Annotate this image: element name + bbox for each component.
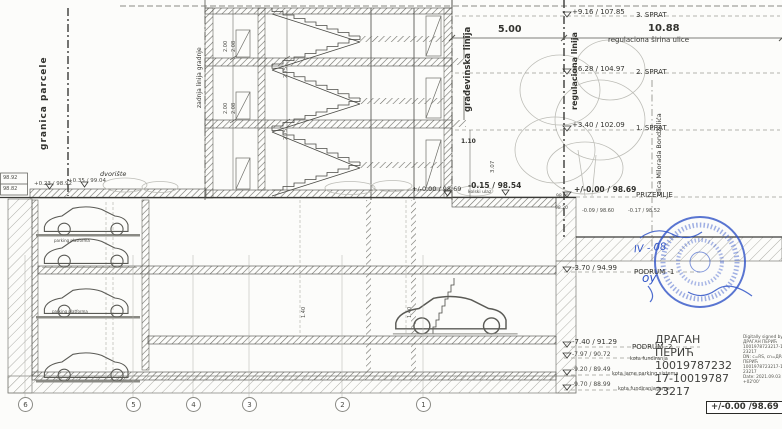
dim-label: 2.75 — [284, 129, 289, 140]
level-name: 3. SPRAT — [636, 12, 667, 19]
level-elev: -7.40 / 91.29 — [572, 339, 617, 346]
parking-system — [36, 200, 406, 383]
grid-bubble: 4 — [186, 397, 201, 412]
datum-box: +/-0.00 /98.69 — [706, 401, 782, 414]
level-name: PRIZEMLJE — [636, 192, 673, 199]
car-silhouettes — [42, 207, 517, 381]
granica-parcele-label: granica parcele — [40, 56, 49, 150]
dim-10-88: 10.88 — [648, 24, 680, 34]
level-elev: +9.16 / 107.85 — [572, 9, 625, 16]
level-elev: +6.28 / 104.97 — [572, 66, 625, 73]
signature-name-line: 10019787232 — [655, 360, 732, 371]
dim-label: 2.75 — [284, 67, 289, 78]
yard-elevation: +0.35 / 99.04 — [68, 179, 106, 185]
level-name: 2. SPRAT — [636, 69, 667, 76]
grid-bubble: 3 — [242, 397, 257, 412]
signature-name-line: 23217 — [655, 386, 690, 397]
dim-label: 2.08 — [232, 103, 237, 114]
dvoriste-label: dvorište — [100, 171, 126, 178]
car-caption: parking platforma — [54, 239, 90, 243]
grid-bubble: 1 — [416, 397, 431, 412]
ramp-note: kolski ulaz — [468, 191, 491, 196]
verification-stamp — [640, 217, 752, 307]
street-width-label: regulaciona širina ulice — [608, 37, 689, 44]
section-drawing-sheet: granica parcele zadnja linija gradnje gr… — [0, 0, 782, 429]
level-elev: +/-0.00 / 98.69 — [574, 186, 636, 194]
gradjevinska-linija-label: građevinska linija — [464, 27, 473, 112]
street-spot-elevation: 98.20 — [555, 207, 568, 212]
dim-label: 1.10 — [461, 139, 476, 145]
dim-label: 1.40 — [302, 307, 307, 318]
signature-name-line: ДРАГАН — [655, 334, 700, 345]
level-elev: -9.70 / 88.99 — [572, 382, 611, 388]
ramp-elevation: -0.15 / 98.54 — [468, 182, 521, 190]
pavement-elevation: -0.09 / 98.60 — [582, 209, 614, 214]
dim-label: 3.07 — [491, 161, 497, 173]
signature-name-line: ПЕРИЋ — [655, 347, 694, 358]
level-elev: -9.20 / 89.49 — [572, 367, 611, 373]
pavement-elevation: -0.17 / 98.52 — [628, 209, 660, 214]
spot-elevation: 98.92 — [3, 176, 17, 181]
stamp-handwriting: оу — [642, 272, 656, 284]
dim-label: 2.08 — [232, 41, 237, 52]
level-elev: -7.97 / 90.72 — [572, 352, 611, 358]
yard-elevation: +0.23 / 98.92 — [34, 182, 72, 188]
street-spot-elevation: 98.55 — [556, 195, 569, 200]
spot-elevation: 98.82 — [3, 187, 17, 192]
zadnja-linija-label: zadnja linija gradnje — [197, 47, 203, 108]
dim-label: 2.00 — [224, 41, 229, 52]
level-elev: +3.40 / 102.09 — [572, 122, 625, 129]
entry-elevation: +/-0.00 / 98.69 — [412, 186, 461, 193]
dim-label: 1.40 — [408, 307, 413, 318]
grid-bubble: 2 — [335, 397, 350, 412]
level-elev: -3.70 / 94.99 — [572, 265, 617, 272]
signature-name-line: 17-10019787 — [655, 373, 729, 384]
dimension-lines — [230, 10, 782, 197]
staircase — [272, 8, 454, 334]
car-caption: parking platforma — [52, 310, 88, 314]
grid-bubble: 6 — [18, 397, 33, 412]
level-name: 1. SPRAT — [636, 125, 667, 132]
signature-detail-line: +02'00' — [743, 381, 760, 385]
dim-5-00: 5.00 — [498, 25, 521, 35]
dim-label: 2.00 — [224, 103, 229, 114]
grid-bubble: 5 — [126, 397, 141, 412]
